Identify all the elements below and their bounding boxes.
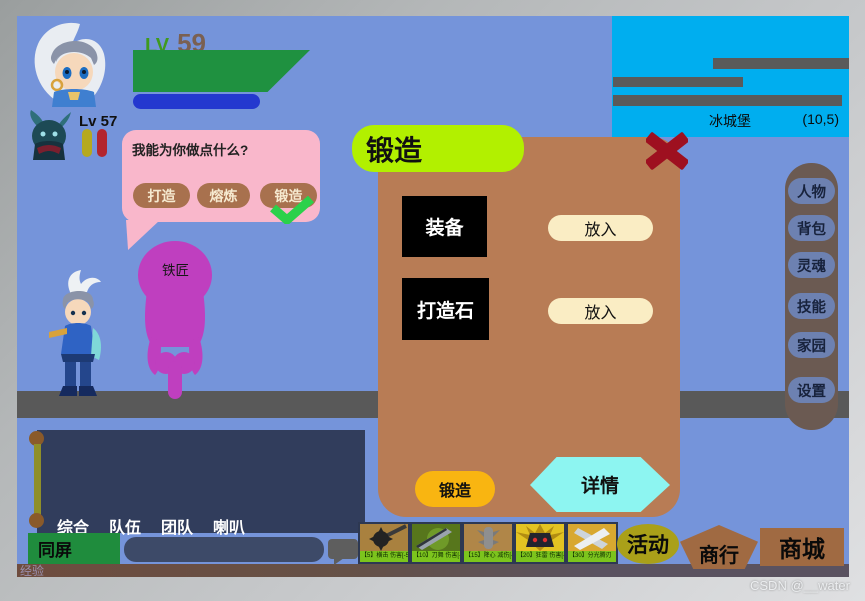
partner-level-label: Lv 57: [79, 113, 117, 130]
skill-hotbar: 【5】横击 伤害[-5] 【10】刀舞 伤害[-3] 【15】降: [358, 522, 618, 564]
mall-button[interactable]: 商城: [760, 528, 844, 566]
forge-dialog: 装备 放入 打造石 放入 锻造 详情: [378, 137, 680, 517]
close-icon: [646, 132, 688, 170]
option-smelt-button[interactable]: 熔炼: [197, 183, 250, 208]
minimap-bar: [713, 58, 849, 69]
chat-tab-team[interactable]: 团队: [161, 514, 193, 538]
chat-bubble-icon: [328, 539, 358, 565]
minimap-panel[interactable]: 冰城堡 (10,5): [612, 16, 849, 137]
hotbar-slot[interactable]: 【10】刀舞 伤害[-3]: [412, 524, 460, 562]
menu-settings-button[interactable]: 设置: [788, 377, 835, 403]
partner-avatar[interactable]: [25, 110, 73, 160]
put-equipment-button[interactable]: 放入: [548, 215, 653, 241]
menu-soul-button[interactable]: 灵魂: [788, 252, 835, 278]
player-avatar[interactable]: [28, 18, 112, 107]
npc-dialog-bubble: 我能为你做点什么? 打造 熔炼 锻造: [122, 130, 320, 222]
location-coordinates: (10,5): [802, 111, 839, 127]
partner-stat-pill-yellow: [82, 129, 92, 157]
exp-label: 经验: [20, 562, 44, 577]
trade-house-button[interactable]: 商行: [680, 525, 758, 569]
hotbar-slot[interactable]: 【20】狂雷 伤害[-90]: [516, 524, 564, 562]
partner-stat-pill-red: [97, 129, 107, 157]
activity-button[interactable]: 活动: [617, 524, 679, 564]
chat-tab-horn[interactable]: 喇叭: [213, 514, 245, 538]
option-craft-button[interactable]: 打造: [133, 183, 190, 208]
hotbar-slot-label: 【30】分光腾刃: [568, 551, 616, 562]
game-window: 冰城堡 (10,5) LV59: [0, 0, 865, 601]
hotbar-slot-label: 【5】横击 伤害[-5]: [360, 551, 408, 562]
menu-home-button[interactable]: 家园: [788, 332, 835, 358]
forge-confirm-button[interactable]: 锻造: [415, 471, 495, 507]
check-icon: [269, 196, 315, 224]
close-button[interactable]: [646, 132, 688, 170]
hotbar-slot-label: 【15】降心 减伤[-10]: [464, 551, 512, 562]
same-screen-button[interactable]: 同屏: [28, 533, 120, 564]
game-viewport: 冰城堡 (10,5) LV59: [17, 16, 849, 577]
mp-bar: [133, 94, 260, 109]
chat-input[interactable]: [124, 537, 324, 562]
send-chat-button[interactable]: [328, 539, 358, 565]
minimap-bar: [613, 77, 743, 87]
hotbar-slot-label: 【10】刀舞 伤害[-3]: [412, 551, 460, 562]
minimap-bar: [613, 95, 842, 106]
menu-character-button[interactable]: 人物: [788, 178, 835, 204]
blade-skill-icon: [412, 524, 460, 551]
watermark: CSDN @__water: [750, 578, 850, 593]
forge-dialog-title: 锻造: [352, 125, 524, 172]
put-stone-button[interactable]: 放入: [548, 298, 653, 324]
menu-skill-button[interactable]: 技能: [788, 293, 835, 319]
chat-panel: 综合 队伍 团队 喇叭: [37, 430, 365, 533]
player-character-sprite: [41, 268, 115, 400]
location-name: 冰城堡: [709, 111, 751, 131]
mace-skill-icon: [360, 524, 408, 551]
exp-bar: [133, 50, 310, 92]
hotbar-slot[interactable]: 【5】横击 伤害[-5]: [360, 524, 408, 562]
menu-bag-button[interactable]: 背包: [788, 215, 835, 241]
side-menu: 人物 背包 灵魂 技能 家园 设置: [785, 163, 838, 430]
helm-burst-skill-icon: [516, 524, 564, 551]
forge-stone-slot[interactable]: 打造石: [402, 278, 489, 340]
npc-question: 我能为你做点什么?: [132, 139, 248, 159]
equipment-slot[interactable]: 装备: [402, 196, 487, 257]
hotbar-slot[interactable]: 【15】降心 减伤[-10]: [464, 524, 512, 562]
hotbar-slot-label: 【20】狂雷 伤害[-90]: [516, 551, 564, 562]
club-skill-icon: [464, 524, 512, 551]
hotbar-slot[interactable]: 【30】分光腾刃: [568, 524, 616, 562]
cross-blades-skill-icon: [568, 524, 616, 551]
details-button[interactable]: 详情: [530, 457, 670, 512]
scrollbar-track[interactable]: [34, 444, 41, 518]
npc-name-label: 铁匠: [162, 259, 189, 279]
scrollbar-thumb-bottom[interactable]: [29, 513, 44, 528]
